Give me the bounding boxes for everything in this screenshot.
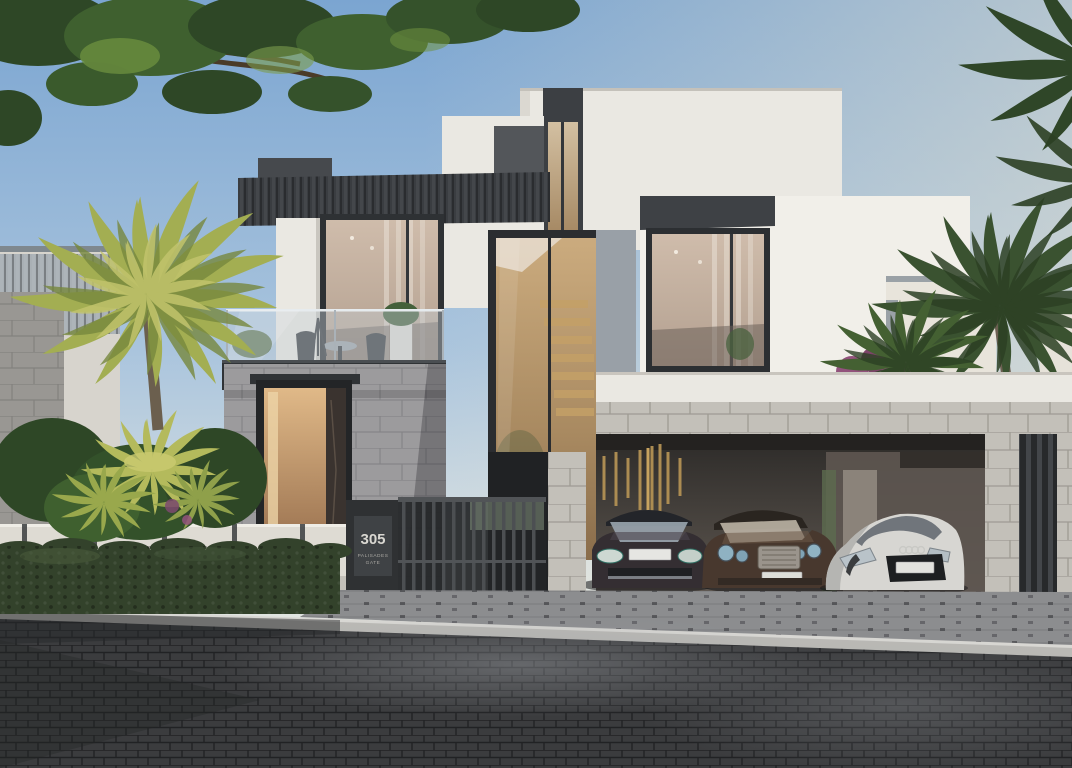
entry-gate: [398, 497, 546, 592]
right-window: [646, 228, 770, 372]
carport-parapet: [596, 372, 1072, 402]
address-number: 305: [360, 531, 385, 548]
right-volume-fascia: [640, 196, 775, 230]
porsche-headlight-right: [678, 549, 702, 563]
villa-render: 305 PALISADES GATE: [0, 0, 1072, 768]
hedge: [0, 538, 352, 614]
upper-left-dark-panel: [494, 126, 544, 180]
bentley-grille: [758, 546, 800, 569]
porsche-license-plate: [629, 549, 671, 560]
grey-panel: [596, 230, 636, 372]
bougainvillea-left: [165, 499, 179, 513]
bentley-headlight-outer-left: [718, 545, 734, 561]
driveway: [0, 590, 1072, 768]
porsche-headlight-left: [597, 549, 623, 563]
address-plaque: 305 PALISADES GATE: [354, 516, 392, 576]
address-line2: GATE: [366, 560, 381, 566]
audi-license-plate: [896, 562, 934, 573]
address-line1: PALISADES: [358, 553, 389, 559]
slatted-side-gate: [1019, 434, 1057, 592]
bentley-headlight-outer-right: [807, 544, 821, 558]
